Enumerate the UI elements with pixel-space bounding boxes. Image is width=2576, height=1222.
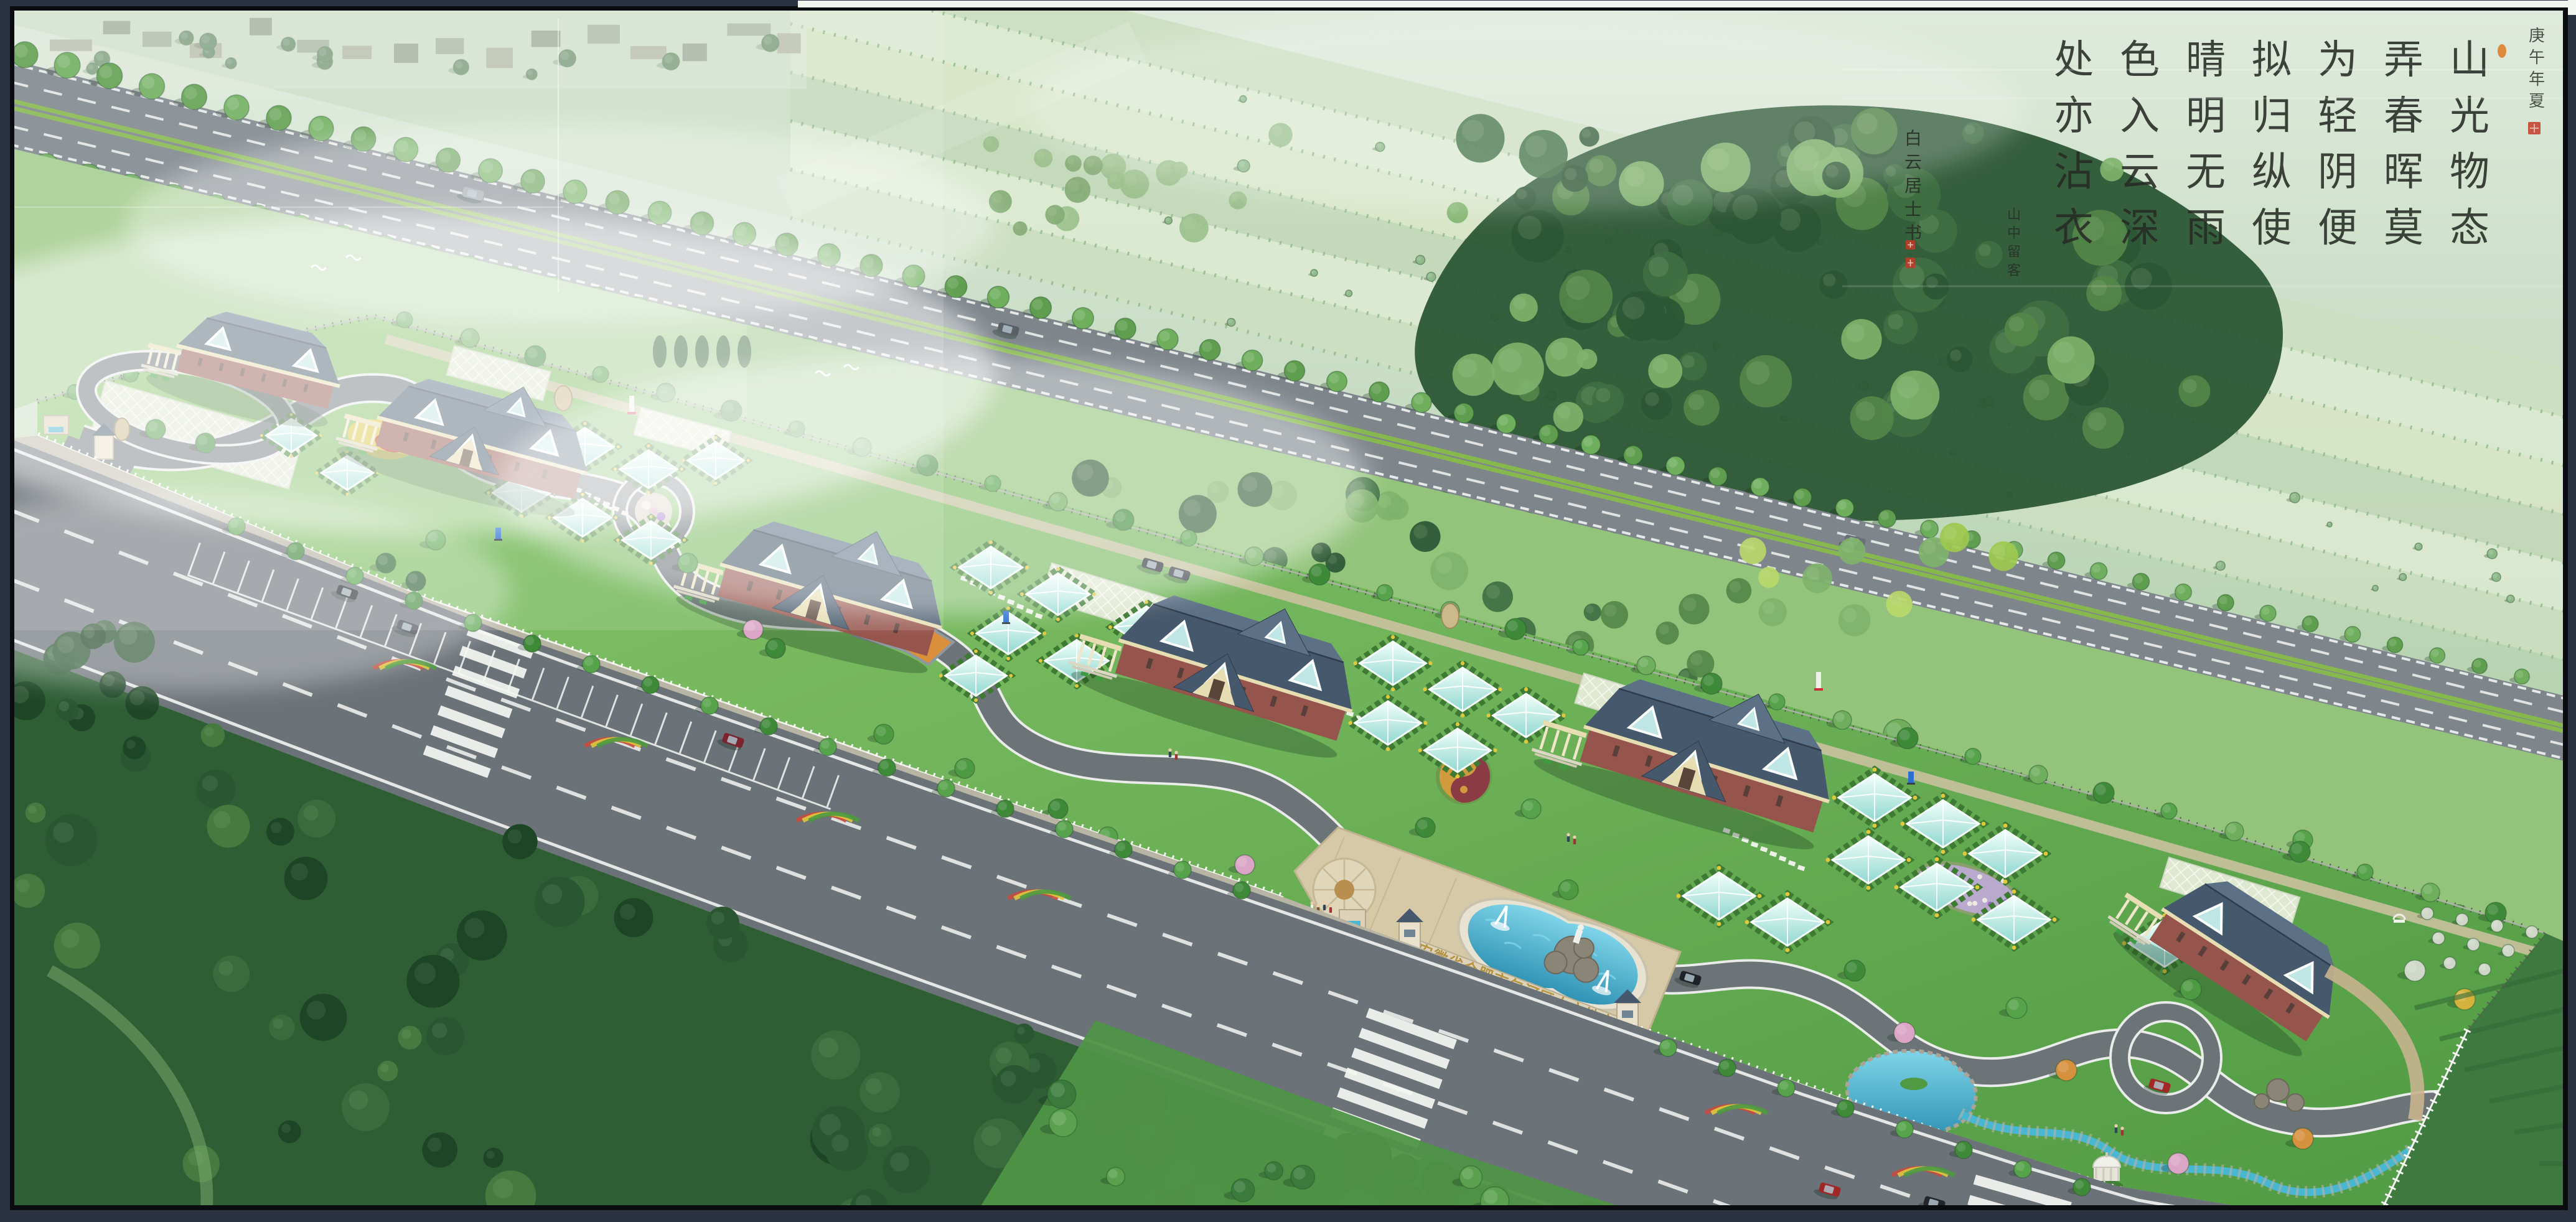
forest-tree	[406, 955, 459, 1008]
calligraphy-signature: 云	[1904, 152, 1922, 172]
calligraphy-poem-column: 阴	[2318, 149, 2358, 195]
forest-tree	[45, 814, 98, 866]
forest-tree	[422, 1132, 457, 1168]
forest-tree	[502, 824, 537, 859]
top-white-strip	[798, 1, 2576, 7]
forest-tree	[342, 1083, 390, 1131]
forest-tree	[426, 1017, 464, 1055]
forest-tree	[995, 1065, 1033, 1104]
calligraphy-poem-column: 光	[2450, 93, 2489, 139]
forest-tree	[706, 907, 739, 940]
calligraphy-poem-column: 晴	[2186, 37, 2226, 83]
calligraphy-poem-column: 沾	[2054, 149, 2094, 195]
forest-tree	[266, 818, 294, 846]
forest-tree	[297, 800, 335, 837]
calligraphy-poem-column: 春	[2384, 93, 2424, 139]
calligraphy-poem-column: 便	[2318, 205, 2358, 251]
calligraphy-date: 午	[2529, 49, 2545, 67]
aerial-rendering: 安徽省合肥市包河区人文地宫 庚午年夏山光物态弄春晖莫为轻阴便拟归纵使晴明无雨色入…	[0, 0, 2576, 1222]
person	[2120, 1127, 2124, 1136]
calligraphy-poem-column: 云	[2120, 149, 2160, 195]
forest-tree	[859, 1072, 900, 1112]
forest-tree	[201, 723, 225, 747]
calligraphy-poem-column: 亦	[2054, 93, 2094, 139]
person	[1567, 833, 1570, 842]
person	[1573, 836, 1576, 844]
calligraphy-poem-column: 入	[2120, 93, 2160, 139]
calligraphy-signature: 白	[1904, 128, 1922, 149]
forest-tree	[278, 1121, 301, 1144]
calligraphy-poem-column: 弄	[2384, 37, 2424, 83]
calligraphy-poem-column: 物	[2450, 149, 2489, 195]
forest-tree	[269, 1015, 294, 1040]
forest-tree	[825, 1128, 868, 1171]
right-white-sliver	[2568, 0, 2576, 15]
forest-tree	[54, 923, 100, 969]
orange-seal-dot	[2498, 44, 2506, 58]
forest-tree	[26, 803, 45, 823]
stone-monument	[1441, 604, 1459, 628]
calligraphy-date: 夏	[2529, 92, 2545, 111]
person	[1323, 902, 1326, 910]
forest-tree	[284, 857, 328, 900]
calligraphy-title: 留	[2007, 245, 2021, 260]
calligraphy-poem-column: 为	[2318, 37, 2358, 83]
forest-tree	[207, 805, 250, 847]
presentation-board: 安徽省合肥市包河区人文地宫 庚午年夏山光物态弄春晖莫为轻阴便拟归纵使晴明无雨色入…	[0, 0, 2576, 1222]
person	[1174, 751, 1178, 760]
calligraphy-poem-column: 处	[2054, 37, 2094, 83]
calligraphy-title: 中	[2007, 226, 2021, 241]
forest-tree	[196, 770, 235, 809]
calligraphy-poem-column: 山	[2450, 37, 2489, 83]
forest-tree	[377, 1061, 398, 1081]
calligraphy-signature: 士	[1904, 199, 1922, 220]
forest-tree	[811, 1030, 860, 1080]
forest-tree	[484, 1148, 503, 1168]
calligraphy-poem-column: 明	[2186, 93, 2226, 139]
calligraphy-poem-column: 晖	[2384, 149, 2424, 195]
calligraphy-title: 客	[2007, 263, 2021, 279]
calligraphy-poem-column: 雨	[2186, 205, 2226, 251]
calligraphy-date: 年	[2529, 70, 2545, 89]
person	[2114, 1124, 2117, 1133]
forest-tree	[11, 874, 45, 908]
forest-tree	[123, 736, 146, 759]
forest-tree	[457, 910, 507, 961]
person	[1329, 904, 1332, 913]
person	[1168, 749, 1171, 757]
forest-tree	[213, 956, 250, 992]
calligraphy-signature: 居	[1904, 175, 1922, 196]
white-sculpture	[1816, 672, 1821, 688]
calligraphy-poem-column: 深	[2120, 205, 2160, 251]
calligraphy-poem-column: 无	[2186, 149, 2226, 195]
forest-tree	[614, 898, 653, 937]
forest-tree	[300, 994, 347, 1041]
calligraphy-date: 庚	[2529, 27, 2545, 45]
forest-tree	[883, 1145, 930, 1193]
calligraphy-poem-column: 轻	[2318, 93, 2358, 139]
calligraphy-poem-column: 态	[2450, 205, 2489, 251]
forest-tree	[398, 1026, 422, 1050]
calligraphy-poem-column: 拟	[2252, 37, 2292, 83]
calligraphy-title: 山	[2007, 207, 2021, 223]
forest-tree	[869, 1124, 892, 1147]
calligraphy-poem-column: 使	[2252, 205, 2292, 251]
calligraphy-poem-column: 归	[2252, 93, 2292, 139]
calligraphy-poem-column: 色	[2120, 37, 2160, 83]
info-kiosk	[1908, 772, 1914, 783]
calligraphy-poem-column: 纵	[2252, 149, 2292, 195]
calligraphy-poem-column: 衣	[2054, 205, 2094, 251]
forest-tree	[1014, 1024, 1034, 1043]
calligraphy-poem-column: 莫	[2384, 205, 2424, 251]
forest-tree	[535, 877, 585, 927]
